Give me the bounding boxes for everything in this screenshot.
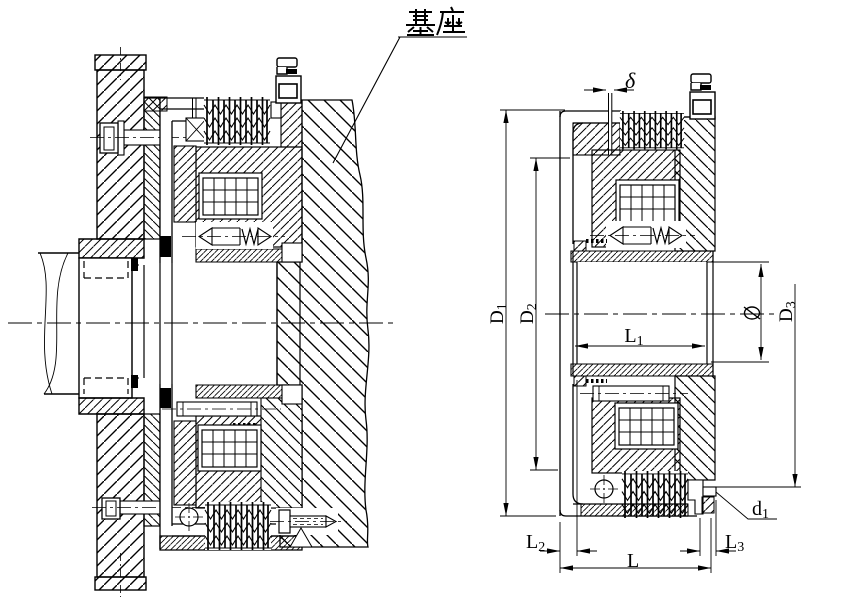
svg-text:δ: δ bbox=[625, 68, 636, 93]
svg-text:L: L bbox=[627, 550, 639, 572]
